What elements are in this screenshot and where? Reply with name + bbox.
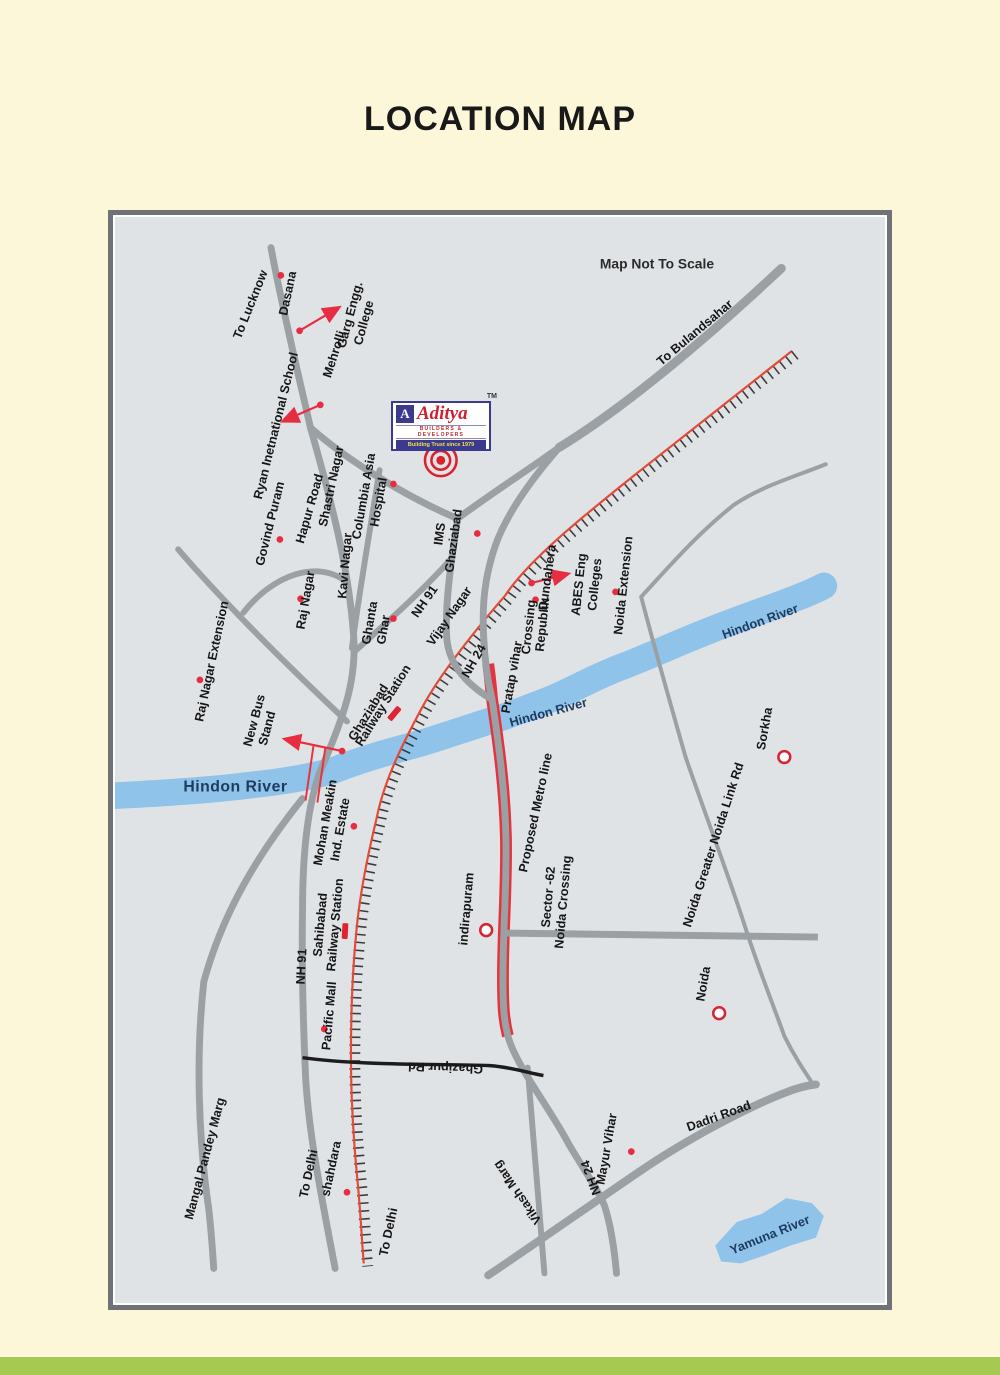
poi-dot-columbia [390, 481, 397, 488]
label-ims-ghaziabad: Ghaziabad [442, 508, 465, 573]
label-to-bulandsahar: To Bulandsahar [654, 297, 735, 369]
poi-dot-ims [474, 530, 481, 537]
label-map-not-to-scale: Map Not To Scale [600, 255, 714, 271]
label-nh91-lower: NH 91 [294, 948, 310, 985]
ring-noida [713, 1007, 725, 1019]
label-hindon-river-west: Hindon River [183, 779, 287, 796]
label-to-delhi-2: To Delhi [377, 1207, 401, 1258]
label-dadri-road: Dadri Road [685, 1098, 753, 1134]
label-to-lucknow: To Lucknow [230, 268, 270, 341]
label-mehrolli: Mehrolli [320, 329, 348, 379]
bottom-green-bar [0, 1357, 1000, 1375]
poi-dot-govind-puram [277, 536, 284, 543]
aditya-brand: Aditya [417, 405, 468, 423]
poi-dot-shahdara [344, 1189, 351, 1196]
location-map-page: LOCATION MAP [0, 0, 1000, 1375]
ring-indirapuram [480, 924, 492, 936]
label-indirapuram: indirapuram [456, 872, 476, 946]
poi-dot-mayur-vihar [628, 1148, 635, 1155]
label-raj-nagar-extension: Raj Nagar Extension [192, 600, 231, 723]
road-raj-nagar-ring [243, 571, 348, 612]
tm-mark: TM [487, 393, 497, 400]
poi-dot-garg [296, 327, 303, 334]
poi-dot-ryan [317, 402, 324, 409]
map-canvas: Map Not To Scale To Lucknow Dasana Garg … [115, 217, 885, 1303]
aditya-logo: TM A Aditya BUILDERS & DEVELOPERS Buildi… [391, 393, 497, 451]
station-sahibabad [342, 923, 349, 939]
ring-sorkha [778, 751, 790, 763]
ring-markers [480, 751, 790, 1019]
poi-dot-mohan-meakin [351, 823, 358, 830]
label-ryan-school: Ryan Inetnational School [251, 351, 301, 501]
label-pacific-mall: Pacific Mall [319, 981, 339, 1051]
map-panel: Map Not To Scale To Lucknow Dasana Garg … [108, 210, 892, 1310]
aditya-tagline-2: Building Trust since 1979 [396, 440, 486, 449]
location-map-svg: Map Not To Scale To Lucknow Dasana Garg … [115, 217, 885, 1303]
arrow-ryan-school [284, 405, 321, 421]
road-sector62 [504, 933, 818, 937]
label-noida-extension: Noida Extension [611, 536, 635, 636]
label-mayur-vihar: Mayur Vihar [593, 1112, 619, 1186]
arrow-garg-college [300, 308, 339, 331]
label-ghazipur-rd: Ghazipur Rd [408, 1059, 483, 1076]
label-noida: Noida [693, 964, 713, 1002]
poi-dot-new-bus-stand [339, 748, 346, 755]
label-shahdara: shahdara [319, 1139, 345, 1198]
page-title: LOCATION MAP [0, 100, 1000, 139]
label-raj-nagar: Raj Nagar [294, 570, 318, 631]
label-sorkha: Sorkha [754, 705, 775, 751]
poi-dot-dundahera [528, 580, 535, 587]
aditya-tagline-1: BUILDERS & DEVELOPERS [396, 425, 486, 439]
aditya-monogram-icon: A [396, 405, 414, 423]
label-proposed-metro: Proposed Metro line [516, 752, 555, 874]
road-connector-ne [458, 447, 560, 518]
road-mangal-pandey-marg [199, 799, 303, 1269]
aditya-logo-box: A Aditya BUILDERS & DEVELOPERS Building … [391, 401, 491, 451]
